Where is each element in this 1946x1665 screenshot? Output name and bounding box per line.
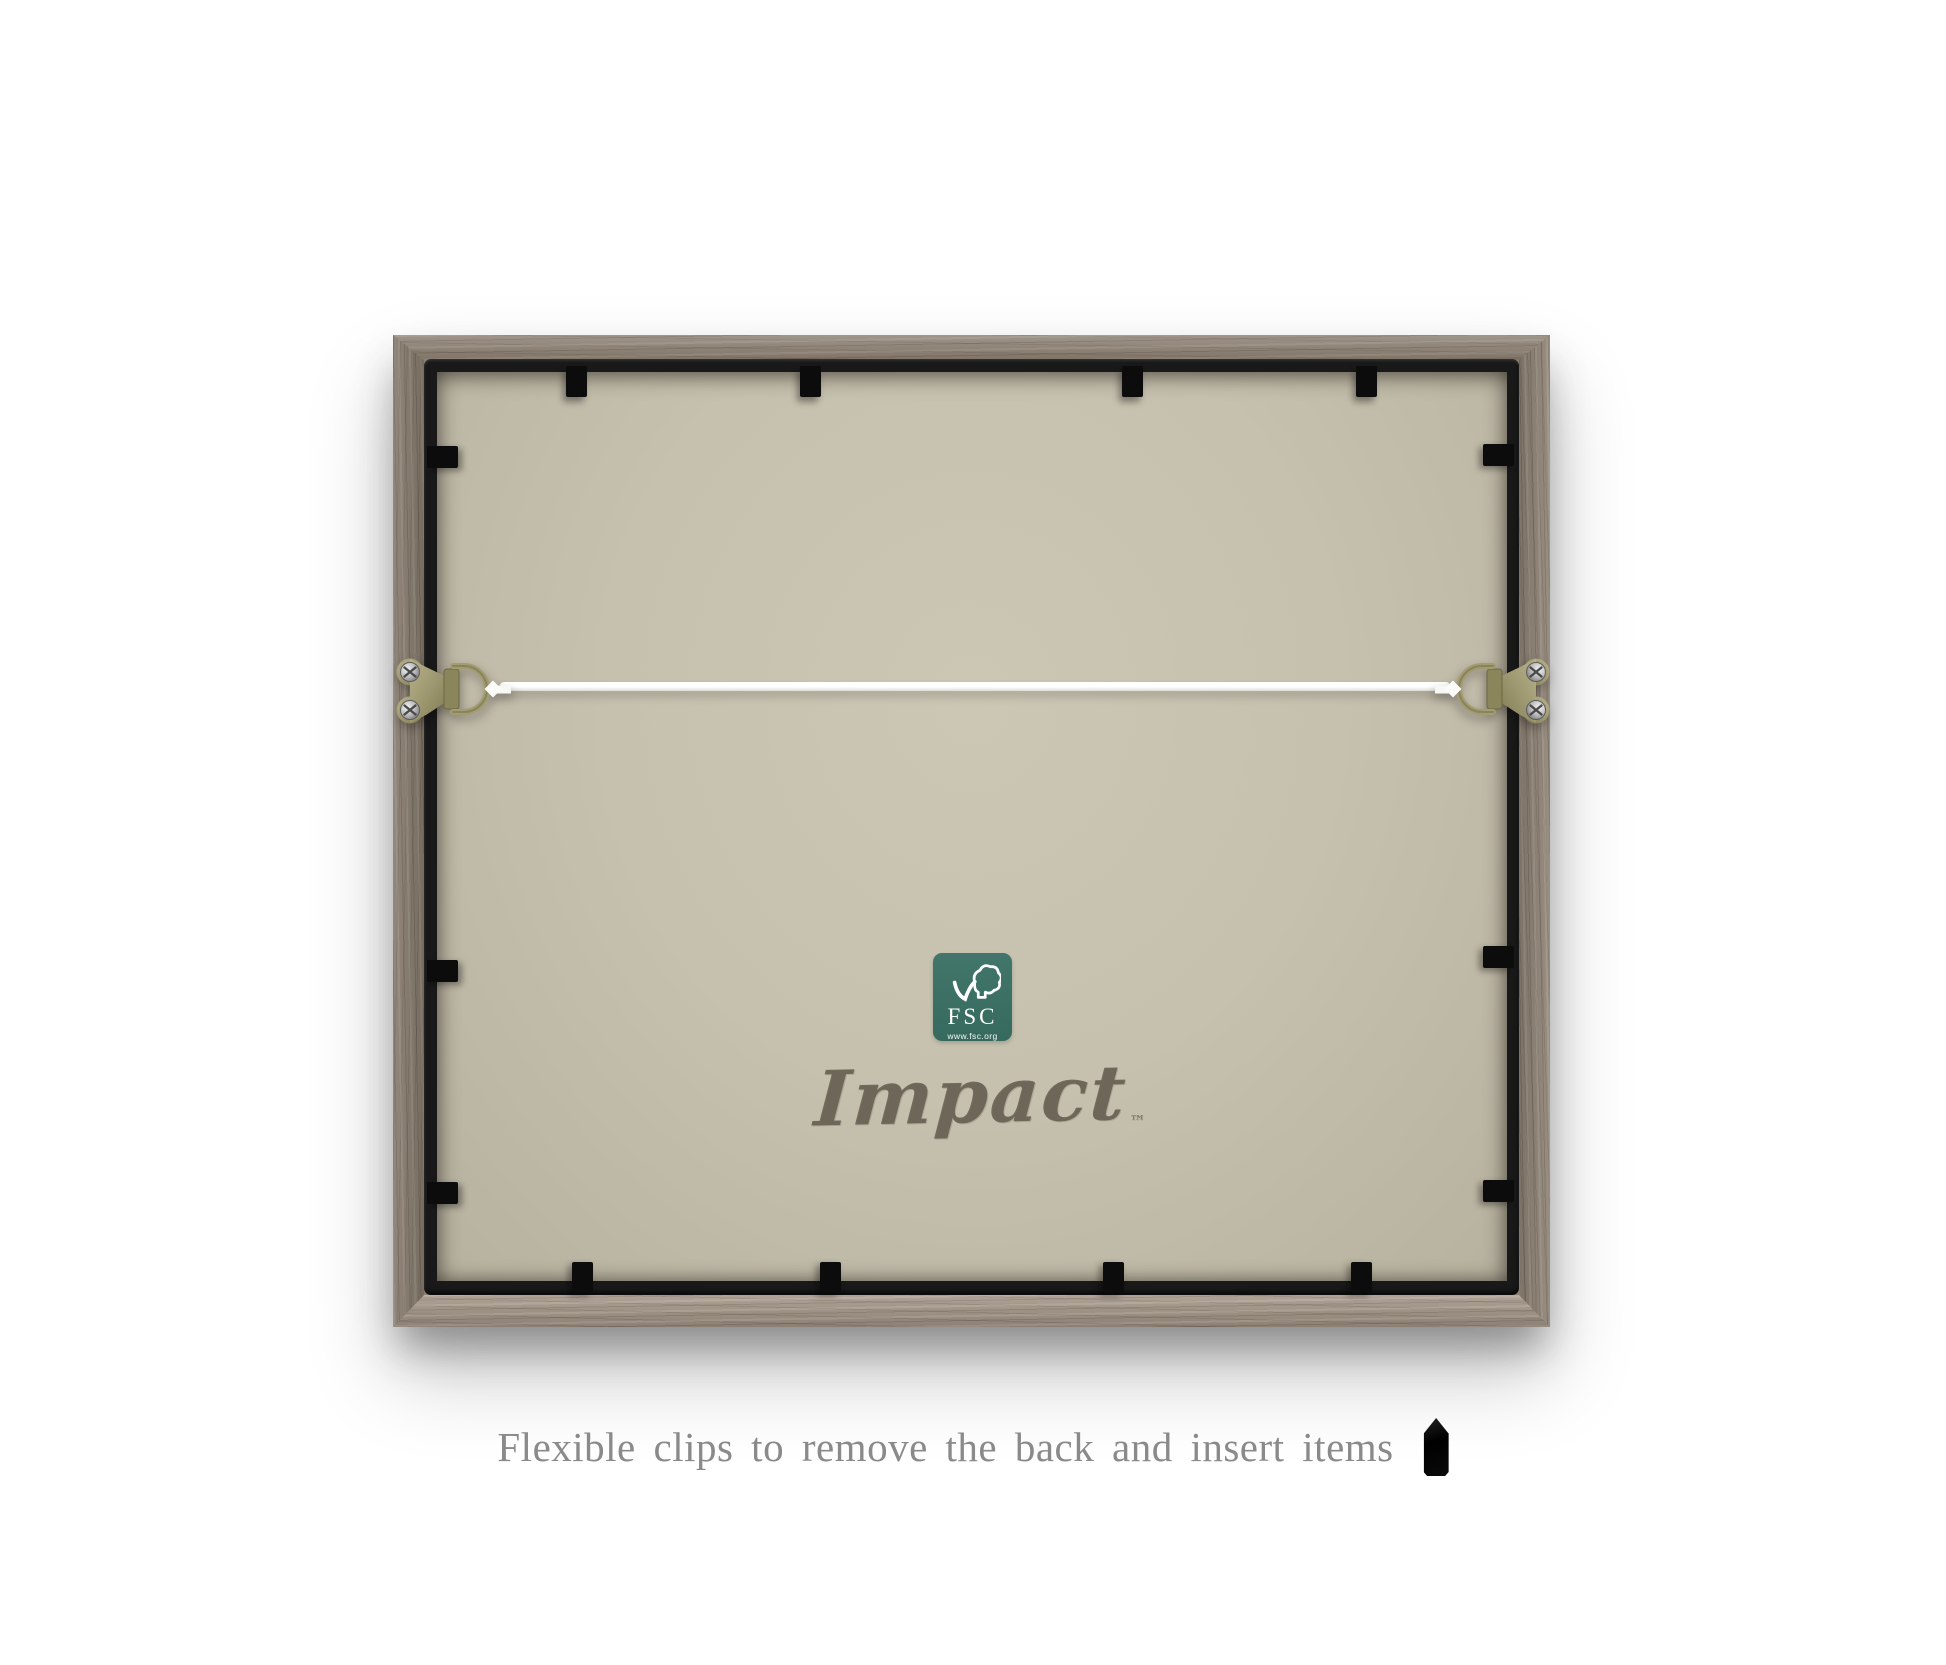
brand-name: Impact [812, 1048, 1130, 1144]
trademark-symbol: ™ [1129, 1111, 1148, 1130]
d-ring-hanger-icon [1435, 646, 1553, 734]
frame-wood-left [393, 335, 424, 1327]
flexible-clip-icon [1424, 1418, 1449, 1476]
flexible-clip-right-3[interactable] [1483, 1180, 1514, 1202]
screw-icon [401, 663, 420, 682]
flexible-clip-left-1[interactable] [427, 446, 458, 468]
flexible-clip-top-3[interactable] [1122, 366, 1143, 397]
screw-icon [1527, 663, 1546, 682]
caption-text: Flexible clips to remove the back and in… [497, 1423, 1393, 1471]
ring-clamp [1487, 669, 1502, 709]
flexible-clip-top-2[interactable] [800, 366, 821, 397]
frame-wood-right [1519, 335, 1550, 1327]
frame-wood-bottom [393, 1295, 1550, 1327]
screw-icon [401, 701, 420, 720]
picture-frame-back [393, 335, 1550, 1327]
hanging-wire [500, 682, 1450, 691]
flexible-clip-right-2[interactable] [1483, 946, 1514, 968]
flexible-clip-top-4[interactable] [1356, 366, 1377, 397]
backing-board [437, 372, 1507, 1281]
flexible-clip-bottom-2[interactable] [820, 1262, 841, 1293]
flexible-clip-left-3[interactable] [427, 1182, 458, 1204]
flexible-clip-bottom-1[interactable] [572, 1262, 593, 1293]
fsc-url-text: www.fsc.org [947, 1031, 997, 1041]
flexible-clip-left-2[interactable] [427, 960, 458, 982]
flexible-clip-bottom-3[interactable] [1103, 1262, 1124, 1293]
flexible-clip-top-1[interactable] [566, 366, 587, 397]
screw-icon [1527, 701, 1546, 720]
brand-logo: Impact™ [787, 1054, 1173, 1138]
fsc-acronym: FSC [948, 1005, 998, 1028]
ring-clamp [444, 669, 459, 709]
frame-wood-top [393, 335, 1550, 360]
d-ring-hanger-icon [393, 646, 511, 734]
fsc-tree-checkmark-icon [945, 958, 1001, 1007]
flexible-clip-bottom-4[interactable] [1351, 1262, 1372, 1293]
flexible-clip-right-1[interactable] [1483, 444, 1514, 466]
caption-row: Flexible clips to remove the back and in… [0, 1412, 1946, 1482]
fsc-label: FSC www.fsc.org [933, 953, 1012, 1041]
